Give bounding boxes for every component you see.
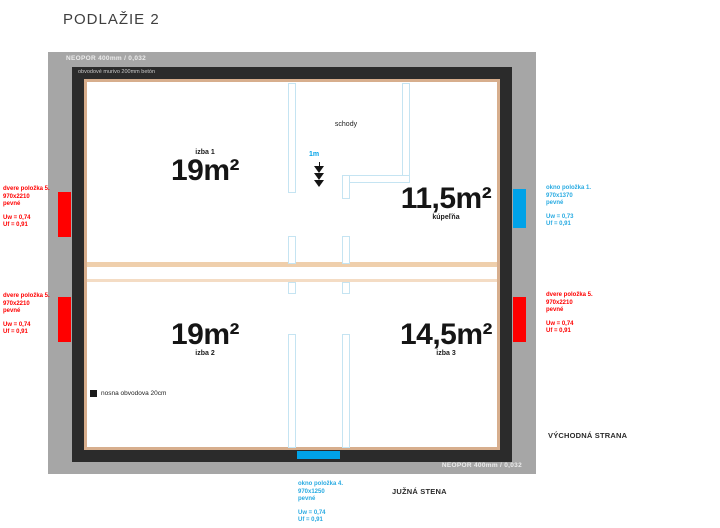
annotation-uw: Uw = 0,74 (298, 510, 356, 518)
room-kupelna-area: 11,5m² (401, 184, 491, 214)
legend-label: nosna obvodova 20cm (101, 390, 166, 397)
annotation-title: okno položka 4. (298, 481, 356, 489)
annotation-door-left-bottom: dvere položka 5. 970x2210 pevné Uw = 0,7… (3, 293, 61, 337)
partition-bathroom-stub (342, 175, 350, 199)
room-izba1: izba 1 19m² (145, 149, 265, 186)
room-izba3: 14,5m² izba 3 (384, 320, 508, 357)
annotation-mount: pevné (546, 307, 604, 315)
annotation-size: 970x2210 (3, 301, 61, 309)
room-izba1-area: 19m² (171, 156, 239, 186)
legend: nosna obvodova 20cm (90, 390, 166, 397)
partition-stair-left-lower (288, 236, 296, 264)
annotation-uf: Uf = 0,91 (546, 328, 604, 336)
window-marker-right (513, 189, 526, 228)
door-marker-right (513, 297, 526, 342)
room-schody-label: schody (316, 121, 376, 128)
room-izba3-label: izba 3 (436, 350, 455, 357)
annotation-mount: pevné (546, 200, 604, 208)
down-arrow-icon (314, 180, 324, 187)
annotation-door-right: dvere položka 5. 970x2210 pevné Uw = 0,7… (546, 292, 604, 336)
partition-stair-left (288, 83, 296, 193)
down-arrow-icon (314, 173, 324, 180)
annotation-size: 970x1250 (298, 489, 356, 497)
annotation-size: 970x2210 (3, 194, 61, 202)
annotation-window-right-top: okno položka 1. 970x1370 pevné Uw = 0,73… (546, 185, 604, 229)
room-kupelna-label: kúpeľňa (432, 214, 459, 221)
scale-arrow-icon (314, 162, 324, 187)
annotation-uw: Uw = 0,74 (546, 321, 604, 329)
annotation-window-bottom: okno položka 4. 970x1250 pevné Uw = 0,74… (298, 481, 356, 525)
floor-plan-page: PODLAŽIE 2 NEOPOR 400mm / 0,032 NEOPOR 4… (0, 0, 720, 528)
annotation-door-left-top: dvere položka 5. 970x2210 pevné Uw = 0,7… (3, 186, 61, 230)
annotation-uf: Uf = 0,91 (3, 329, 61, 337)
partition-corridor-left-lower (288, 334, 296, 448)
annotation-title: okno položka 1. (546, 185, 604, 193)
annotation-size: 970x1370 (546, 193, 604, 201)
wall-note: obvodové murivo 200mm betón (78, 69, 155, 75)
orientation-east-label: VÝCHODNÁ STRANA (548, 431, 627, 440)
legend-wall-swatch (90, 390, 97, 397)
room-izba3-area: 14,5m² (400, 320, 492, 350)
insulation-label-top: NEOPOR 400mm / 0,032 (66, 55, 146, 62)
room-izba2-area: 19m² (171, 320, 239, 350)
room-izba2: 19m² izba 2 (145, 320, 265, 357)
partition-corridor-right-lower (342, 334, 350, 448)
annotation-uw: Uw = 0,74 (3, 322, 61, 330)
annotation-title: dvere položka 5. (3, 186, 61, 194)
annotation-mount: pevné (298, 496, 356, 504)
partition-corridor-right-upper (342, 282, 350, 294)
annotation-uw: Uw = 0,73 (546, 214, 604, 222)
partition-bathroom-left-lower (342, 236, 350, 264)
annotation-uf: Uf = 0,91 (298, 517, 356, 525)
annotation-uw: Uw = 0,74 (3, 215, 61, 223)
room-izba2-label: izba 2 (195, 350, 214, 357)
scale-label: 1m (309, 151, 319, 158)
partition-corridor-left-upper (288, 282, 296, 294)
annotation-mount: pevné (3, 201, 61, 209)
window-marker-bottom (297, 451, 340, 459)
down-arrow-icon (314, 166, 324, 173)
partition-stair-right (402, 83, 410, 181)
annotation-title: dvere položka 5. (3, 293, 61, 301)
annotation-mount: pevné (3, 308, 61, 316)
annotation-title: dvere položka 5. (546, 292, 604, 300)
orientation-south-label: JUŽNÁ STENA (392, 487, 447, 496)
room-kupelna: 11,5m² kúpeľňa (384, 184, 508, 221)
insulation-label-bottom: NEOPOR 400mm / 0,032 (404, 462, 522, 469)
annotation-size: 970x2210 (546, 300, 604, 308)
partition-bathroom-top (342, 175, 410, 183)
annotation-uf: Uf = 0,91 (3, 222, 61, 230)
annotation-uf: Uf = 0,91 (546, 221, 604, 229)
page-title: PODLAŽIE 2 (63, 11, 160, 28)
